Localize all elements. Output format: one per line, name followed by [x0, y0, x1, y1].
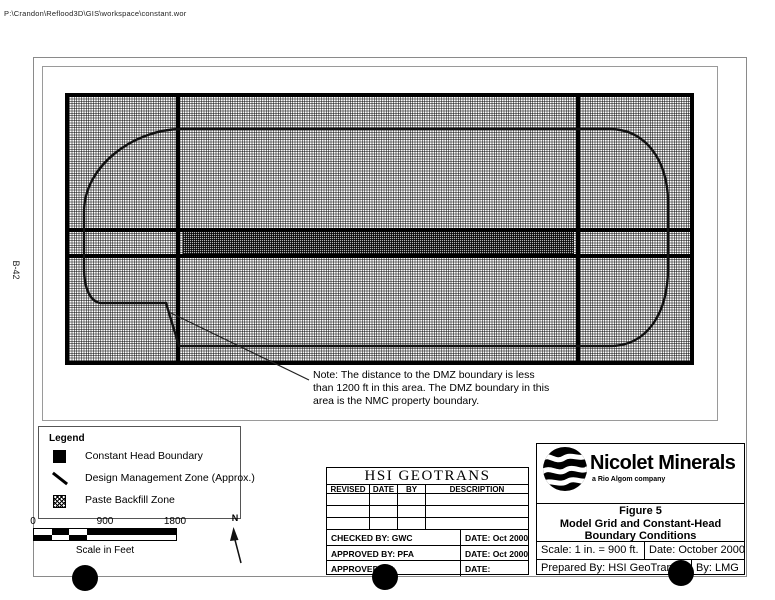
scale-tick-900: 900 — [90, 516, 120, 527]
column-header: DESCRIPTION — [426, 485, 528, 493]
legend-title: Legend — [49, 433, 85, 444]
figure-title: Figure 5 Model Grid and Constant-Head Bo… — [537, 503, 744, 541]
approved-by-value: APPROVED BY: PFA — [327, 546, 461, 560]
legend-item-label: Paste Backfill Zone — [85, 494, 175, 506]
punch-hole — [72, 565, 98, 591]
punch-hole — [372, 564, 398, 590]
legend-item-label: Constant Head Boundary — [85, 450, 203, 462]
revision-empty-row — [327, 493, 528, 505]
hatched-square-icon — [51, 493, 69, 509]
approved-date-value: DATE: Oct 2000 — [461, 546, 528, 560]
revision-empty-row — [327, 517, 528, 529]
scale-bar — [33, 528, 177, 541]
paste-backfill-zone — [183, 232, 574, 254]
dmz-note-line: area is the NMC property boundary. — [313, 395, 593, 408]
approved-date-value: DATE: — [461, 561, 528, 576]
prepared-by-row: Prepared By: HSI GeoTrans By: LMG — [537, 559, 744, 577]
title-block: Nicolet Minerals a Rio Algom company Fig… — [536, 443, 745, 575]
punch-hole — [668, 560, 694, 586]
scale-caption: Scale in Feet — [55, 545, 155, 556]
revision-block-title: HSI GEOTRANS — [327, 468, 528, 484]
approved-by-row: APPROVED BY: PFA DATE: Oct 2000 — [327, 545, 528, 560]
scale-tick-0: 0 — [27, 516, 39, 527]
scale-value: Scale: 1 in. = 900 ft. — [537, 542, 645, 559]
checked-by-value: CHECKED BY: GWC — [327, 530, 461, 545]
revision-header-row: REVISED DATE BY DESCRIPTION — [327, 484, 528, 493]
dmz-note-line: than 1200 ft in this area. The DMZ bound… — [313, 382, 593, 395]
column-header: REVISED — [327, 485, 370, 493]
checked-by-row: CHECKED BY: GWC DATE: Oct 2000 — [327, 529, 528, 545]
scale-date-row: Scale: 1 in. = 900 ft. Date: October 200… — [537, 541, 744, 559]
filled-square-icon — [51, 449, 69, 465]
column-header: BY — [398, 485, 426, 493]
checked-date-value: DATE: Oct 2000 — [461, 530, 528, 545]
revision-empty-row — [327, 505, 528, 517]
date-value: Date: October 2000 — [645, 542, 744, 559]
north-arrow-label: N — [228, 513, 242, 523]
workspace-file-path: P:\Crandon\Reflood3D\GIS\workspace\const… — [4, 9, 186, 18]
nicolet-minerals-logo-icon — [542, 446, 588, 492]
legend: Legend Constant Head Boundary Design Man… — [38, 426, 241, 519]
dmz-note: Note: The distance to the DMZ boundary i… — [313, 369, 593, 408]
diagonal-line-icon — [51, 471, 69, 487]
company-name: Nicolet Minerals — [590, 452, 735, 475]
approved-by-row-2: APPROVED BY: DATE: — [327, 560, 528, 576]
legend-item-label: Design Management Zone (Approx.) — [85, 472, 255, 484]
drafted-by-value: By: LMG — [692, 560, 744, 577]
grid-thick-hline-lower — [65, 254, 694, 258]
revision-block: HSI GEOTRANS REVISED DATE BY DESCRIPTION… — [326, 467, 529, 575]
company-subtitle: a Rio Algom company — [592, 476, 665, 483]
scale-tick-1800: 1800 — [157, 516, 193, 527]
page-side-label: B-42 — [11, 255, 21, 285]
figure-title-line: Model Grid and Constant-Head — [537, 518, 744, 531]
scale-bar-bottom-row — [34, 535, 176, 541]
figure-number: Figure 5 — [537, 505, 744, 518]
column-header: DATE — [370, 485, 398, 493]
dmz-note-line: Note: The distance to the DMZ boundary i… — [313, 369, 593, 382]
